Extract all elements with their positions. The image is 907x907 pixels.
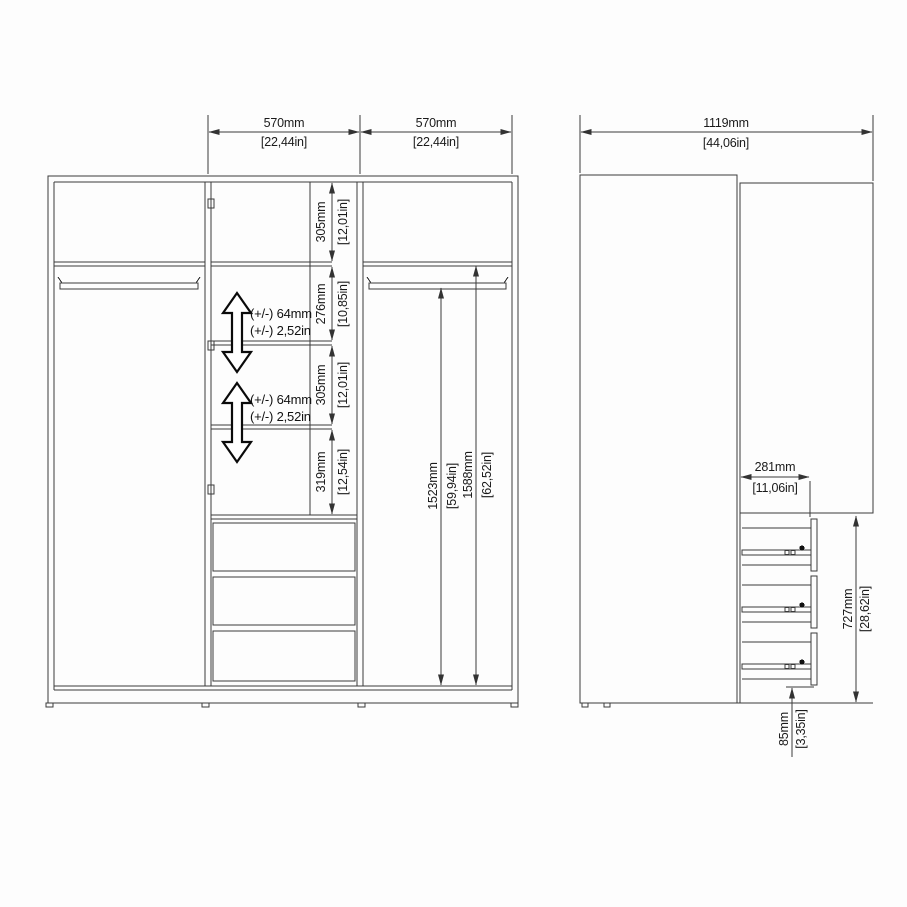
dim-total-width-mm: 1119mm <box>703 116 749 130</box>
dim-drawer-depth-mm: 281mm <box>755 460 796 474</box>
wardrobe-technical-drawing: 570mm [22,44in] 570mm [22,44in] 305mm [1… <box>0 0 907 907</box>
front-view-structure <box>46 176 518 707</box>
drawer-side-3 <box>742 633 817 685</box>
dim-height1-mm: 1523mm <box>426 462 440 509</box>
adjustable-arrow-2 <box>223 383 251 462</box>
dim-seg4-in: [12,54in] <box>336 449 350 495</box>
adjustable2-mm: (+/-) 64mm <box>250 392 312 407</box>
drawer-side-2 <box>742 576 817 628</box>
dim-seg3-mm: 305mm <box>314 365 328 406</box>
foot <box>511 703 518 707</box>
drawer-front-1 <box>213 523 355 571</box>
foot <box>358 703 365 707</box>
adjustable-arrow-1 <box>223 293 251 372</box>
front-view-dimensions: 570mm [22,44in] 570mm [22,44in] 305mm [1… <box>208 115 512 685</box>
side-panel <box>580 175 737 703</box>
dim-seg1-mm: 305mm <box>314 202 328 243</box>
foot <box>202 703 209 707</box>
dim-plinth-mm: 85mm <box>777 712 791 746</box>
dim-height2-mm: 1588mm <box>461 451 475 498</box>
hanging-rail-right <box>367 277 508 289</box>
dim-height2-in: [62,52in] <box>480 452 494 498</box>
dim-drawer-stack-in: [28,62in] <box>858 586 872 632</box>
divider-right <box>357 182 363 686</box>
drawer-front-3 <box>213 631 355 681</box>
adjustable1-in: (+/-) 2,52in <box>250 323 311 338</box>
drawer-slide-knob <box>799 545 804 550</box>
drawer-slide-knob <box>799 602 804 607</box>
side-view-dimensions: 1119mm [44,06in] 281mm [11,06in] 727mm [… <box>580 115 873 757</box>
dim-seg3-in: [12,01in] <box>336 362 350 408</box>
dim-seg1-in: [12,01in] <box>336 199 350 245</box>
drawer-side-1 <box>742 519 817 571</box>
top-shelf <box>54 262 512 266</box>
foot <box>582 703 588 707</box>
dim-seg2-in: [10,85in] <box>336 281 350 327</box>
dim-drawer-depth-in: [11,06in] <box>752 481 797 495</box>
dim-door1-width-mm: 570mm <box>264 116 305 130</box>
dim-door2-width-mm: 570mm <box>416 116 457 130</box>
drawer-slide-knob <box>799 659 804 664</box>
wardrobe-outline <box>48 176 518 703</box>
divider-left <box>205 182 211 686</box>
hanging-rail-left <box>58 277 200 289</box>
adjustable2-in: (+/-) 2,52in <box>250 409 311 424</box>
dim-seg4-mm: 319mm <box>314 452 328 493</box>
side-view-structure <box>580 175 873 707</box>
adjustable1-mm: (+/-) 64mm <box>250 306 312 321</box>
dim-seg2-mm: 276mm <box>314 284 328 325</box>
dim-drawer-stack-mm: 727mm <box>841 589 855 630</box>
extension-lines <box>580 115 873 687</box>
foot <box>604 703 610 707</box>
technical-drawing-page: 570mm [22,44in] 570mm [22,44in] 305mm [1… <box>0 0 907 907</box>
drawer-fronts <box>213 523 355 681</box>
dim-total-width-in: [44,06in] <box>703 136 749 150</box>
dim-plinth-in: [3,35in] <box>794 709 808 748</box>
dim-door2-width-in: [22,44in] <box>413 135 459 149</box>
dim-height1-in: [59,94in] <box>445 463 459 509</box>
foot <box>46 703 53 707</box>
dim-door1-width-in: [22,44in] <box>261 135 307 149</box>
drawer-front-2 <box>213 577 355 625</box>
